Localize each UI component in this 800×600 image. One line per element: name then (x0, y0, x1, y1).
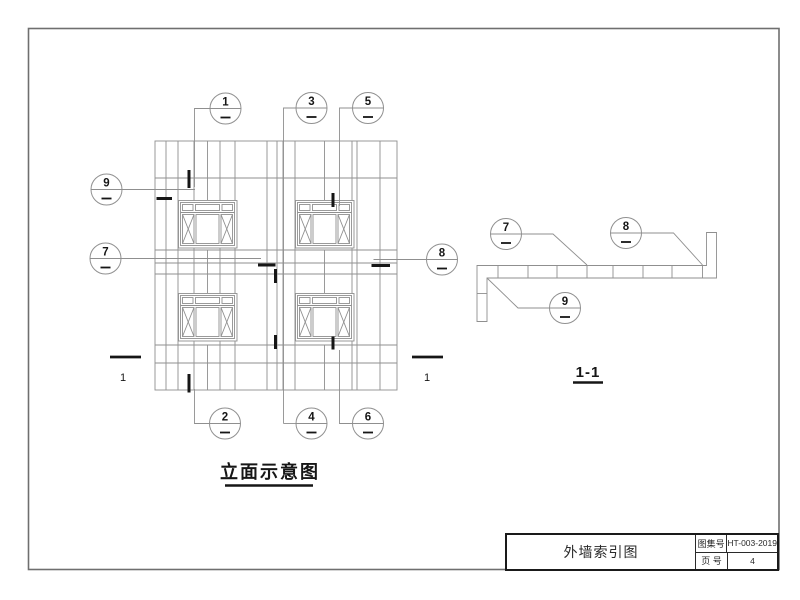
wall-section-joints (477, 266, 703, 294)
window-lower-right (296, 294, 355, 342)
callout-leader-line (642, 233, 703, 265)
page-number-row: 页 号 4 (696, 553, 777, 570)
section-callout-9: 9 (488, 279, 581, 324)
callout-leader-line (340, 108, 353, 206)
callout-number: 4 (308, 412, 315, 424)
callout-leader-line (340, 350, 353, 424)
title-block: 外墙索引图 图集号 HT-003-2019 页 号 4 (505, 533, 779, 571)
section-title: 1-1 (576, 364, 601, 381)
callout-leader-line (488, 279, 550, 309)
section-callout-7: 7 (491, 219, 588, 266)
atlas-number-label: 图集号 (696, 535, 727, 552)
atlas-number-row: 图集号 HT-003-2019 (696, 535, 777, 553)
callout-number: 9 (103, 178, 109, 190)
callout-number: 2 (222, 412, 228, 424)
callout-number: 7 (503, 222, 509, 234)
callout-leader-line (522, 234, 588, 265)
window-upper-left (179, 201, 238, 249)
drawing-title: 外墙索引图 (507, 535, 695, 569)
page-number-label: 页 号 (696, 553, 728, 570)
page-border (29, 29, 780, 570)
section-cut-marks: 1 1 (110, 357, 443, 384)
callout-number: 7 (102, 247, 108, 259)
callout-number: 5 (365, 96, 372, 108)
elevation-drawing: 1 1 立面示意图 (110, 141, 443, 486)
callout-number: 1 (222, 97, 229, 109)
elevation-callout-2: 2 (189, 374, 241, 439)
elevation-callout-3: 3 (276, 93, 328, 424)
callout-leader-line (195, 389, 210, 424)
window-upper-right (296, 201, 355, 249)
atlas-drawing-sheet: 1 1 立面示意图 1-1 135978246789 外墙索引图 图集号 HT-… (0, 0, 800, 600)
callout-number: 8 (623, 221, 630, 233)
title-block-info: 图集号 HT-003-2019 页 号 4 (695, 535, 777, 569)
page-number-value: 4 (728, 553, 777, 570)
callout-number: 9 (562, 296, 568, 308)
elevation-callout-1: 1 (189, 93, 241, 188)
elevation-title: 立面示意图 (220, 461, 320, 482)
atlas-number-value: HT-003-2019 (727, 535, 777, 552)
elevation-callout-6: 6 (333, 337, 384, 440)
drawing-canvas: 1 1 立面示意图 1-1 135978246789 (0, 0, 800, 600)
elevation-callout-5: 5 (333, 93, 384, 208)
facade-panel-grid (155, 141, 397, 390)
callout-number: 8 (439, 248, 446, 260)
section-mark-label-left: 1 (120, 372, 126, 384)
section-mark-label-right: 1 (424, 372, 430, 384)
callout-number: 6 (365, 412, 371, 424)
window-lower-left (179, 294, 238, 342)
callout-leader-line (284, 108, 297, 424)
facade-windows (179, 201, 355, 342)
elevation-callout-8: 8 (372, 244, 458, 275)
callout-number: 3 (308, 96, 314, 108)
section-1-1-drawing: 1-1 (477, 233, 717, 383)
section-callout-8: 8 (611, 218, 703, 266)
